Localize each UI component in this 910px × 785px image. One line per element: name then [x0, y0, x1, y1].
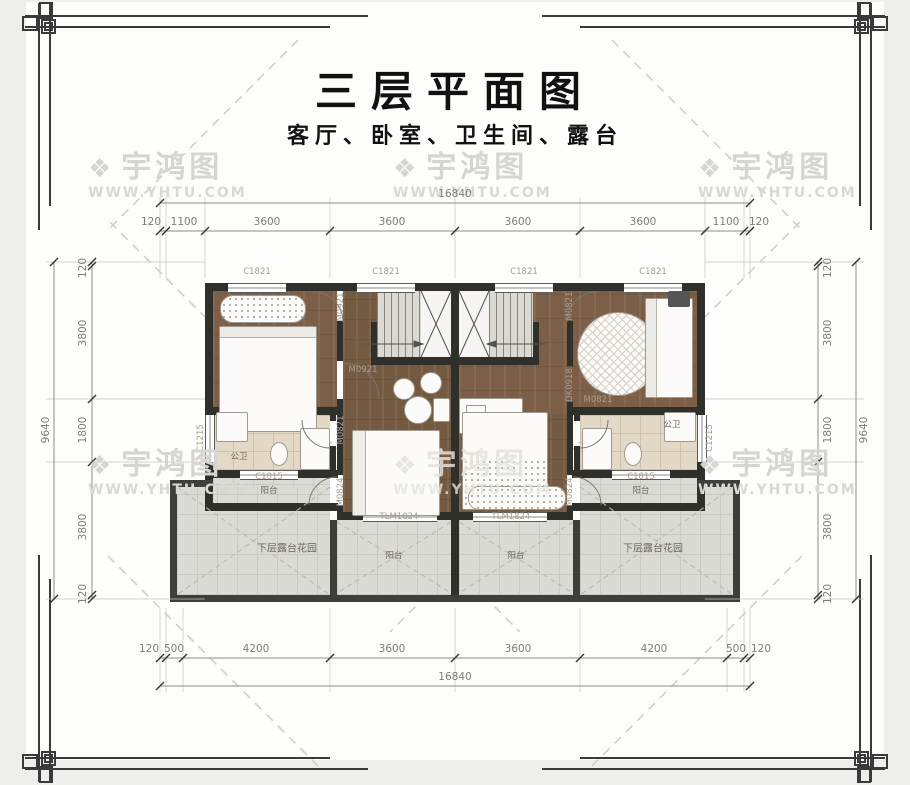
- dim-top-seg: 3600: [254, 216, 281, 228]
- room-label-balcony: 阳台: [507, 549, 524, 561]
- dim-top-seg: 3600: [630, 216, 657, 228]
- dim-bottom-seg: 4200: [243, 643, 270, 655]
- dim-bottom-seg: 120: [751, 643, 771, 655]
- door-label: M0821: [565, 292, 575, 321]
- window-label: C1821: [243, 267, 271, 277]
- dim-bottom-seg: 4200: [641, 643, 668, 655]
- dim-top-seg: 120: [749, 216, 769, 228]
- dim-bottom-seg: 3600: [379, 643, 406, 655]
- opening-label: DK0918: [565, 368, 575, 402]
- window-label: C1815: [255, 472, 283, 482]
- window-label: C1821: [510, 267, 538, 277]
- door-swing-arcs: [302, 292, 608, 505]
- dim-top-total: 16840: [438, 188, 471, 200]
- door-label: M0821: [336, 416, 346, 445]
- dimension-extension-lines: [46, 197, 864, 692]
- room-label-terrace: 下层露台花园: [623, 540, 683, 555]
- dim-top-seg: 3600: [379, 216, 406, 228]
- room-label-bath: 公卫: [230, 450, 247, 462]
- dim-right-seg: 3800: [822, 514, 834, 541]
- window-label: C1215: [705, 424, 715, 452]
- dim-top-seg: 1100: [171, 216, 198, 228]
- window-label: C1821: [372, 267, 400, 277]
- dim-left-seg: 1800: [77, 417, 89, 444]
- dim-top-seg: 120: [141, 216, 161, 228]
- dim-bottom-seg: 3600: [505, 643, 532, 655]
- room-label-balcony: 阳台: [632, 484, 649, 496]
- dim-right-total: 9640: [858, 417, 870, 444]
- dim-top-seg: 1100: [713, 216, 740, 228]
- door-label: M0921: [349, 365, 378, 375]
- floor-plan-page: { "title": "三层平面图", "subtitle": "客厅、卧室、卫…: [0, 0, 910, 785]
- dim-bottom-seg: 500: [164, 643, 184, 655]
- dim-bottom-seg: 500: [726, 643, 746, 655]
- room-label-balcony: 阳台: [385, 549, 402, 561]
- window-label: C1821: [639, 267, 667, 277]
- dim-bottom-total: 16840: [438, 671, 471, 683]
- stair-direction-arrows: [364, 341, 546, 347]
- door-label: M0821: [584, 395, 613, 405]
- room-label-balcony: 阳台: [260, 484, 277, 496]
- dim-left-seg: 120: [77, 584, 89, 604]
- room-label-terrace: 下层露台花园: [257, 540, 317, 555]
- dim-right-seg: 3800: [822, 320, 834, 347]
- dim-right-seg: 120: [822, 584, 834, 604]
- dim-right-seg: 1800: [822, 417, 834, 444]
- room-label-bath: 公卫: [663, 418, 680, 430]
- sliding-door-label: TLM1824: [492, 512, 531, 522]
- door-label: M0824: [336, 478, 346, 507]
- door-label: M0824: [565, 478, 575, 507]
- plan-annotations-svg: [0, 0, 910, 785]
- dim-bottom-seg: 120: [139, 643, 159, 655]
- stair-landing-cross-lines: [421, 291, 489, 357]
- window-label: C1815: [627, 472, 655, 482]
- dim-left-seg: 3800: [77, 320, 89, 347]
- door-label: M0921: [336, 293, 346, 322]
- dim-top-seg: 3600: [505, 216, 532, 228]
- dim-left-total: 9640: [40, 417, 52, 444]
- stair-down-label: 下: [351, 335, 361, 350]
- dim-right-seg: 120: [822, 258, 834, 278]
- sliding-door-label: TLM1824: [380, 512, 419, 522]
- dim-left-seg: 120: [77, 258, 89, 278]
- stair-down-label: 下: [549, 335, 559, 350]
- window-label: C1215: [196, 424, 206, 452]
- dim-left-seg: 3800: [77, 514, 89, 541]
